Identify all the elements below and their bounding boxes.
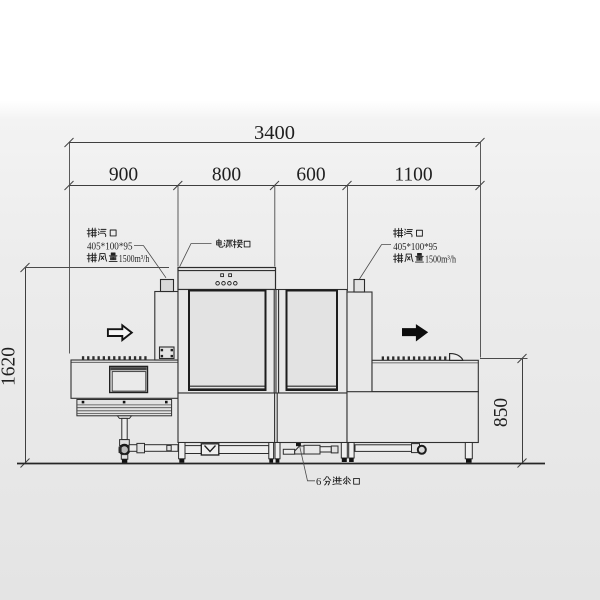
svg-text:1100: 1100 [394,165,432,186]
svg-text:1500m³/h: 1500m³/h [119,254,150,265]
svg-text:405*100*95: 405*100*95 [87,241,133,252]
svg-text:600: 600 [296,165,325,186]
svg-text:800: 800 [212,165,241,186]
svg-text:6: 6 [316,477,321,488]
svg-text:850: 850 [491,398,512,427]
svg-text:3400: 3400 [254,122,295,144]
svg-text:1500m³/h: 1500m³/h [425,254,457,265]
svg-text:405*100*95: 405*100*95 [393,242,437,253]
svg-text:1620: 1620 [0,347,20,386]
svg-text:900: 900 [109,165,138,186]
